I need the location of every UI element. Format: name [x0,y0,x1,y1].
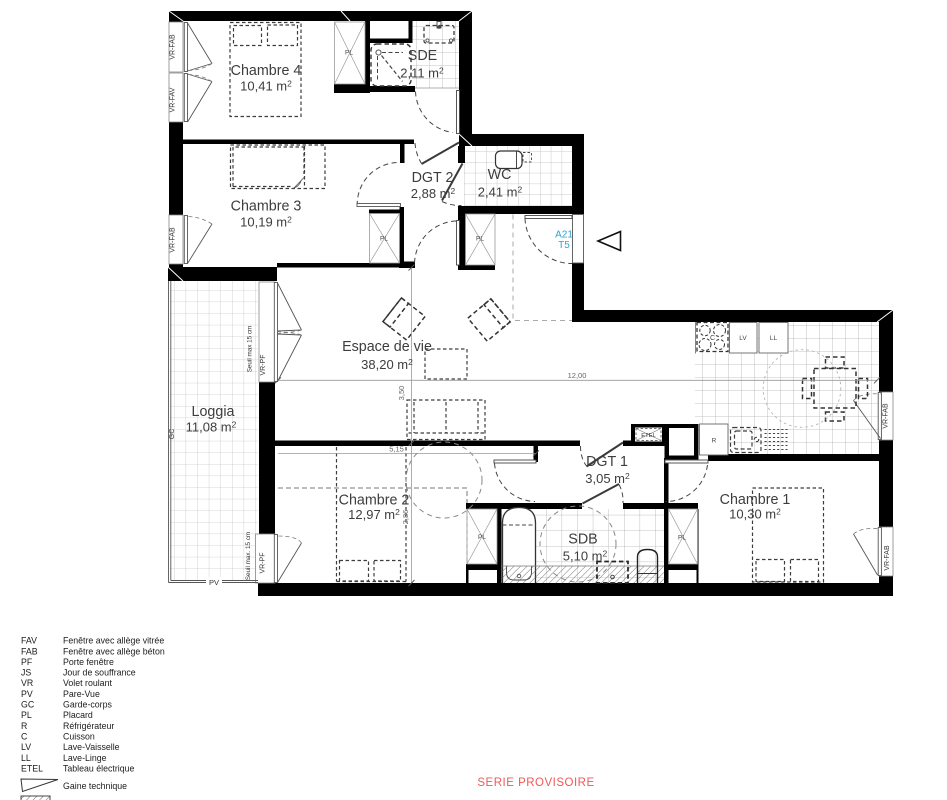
svg-text:WC: WC [488,167,512,183]
svg-text:3,05 m2: 3,05 m2 [585,471,630,486]
svg-text:VR-FAB: VR-FAB [884,545,891,571]
svg-text:PL: PL [476,236,484,243]
svg-text:Chambre 4: Chambre 4 [231,63,302,79]
svg-text:VR-FAB: VR-FAB [170,227,177,253]
svg-text:3,50: 3,50 [397,386,406,401]
svg-text:PL: PL [478,534,486,541]
svg-text:Chambre 3: Chambre 3 [231,199,302,215]
svg-text:38,20 m2: 38,20 m2 [361,357,413,372]
svg-text:2,88 m2: 2,88 m2 [411,186,456,201]
svg-text:PL: PL [345,50,353,57]
svg-text:Lave-Linge: Lave-Linge [63,753,107,763]
svg-text:R: R [21,721,27,731]
svg-text:VR-PF: VR-PF [260,553,267,574]
svg-text:PV: PV [209,578,219,587]
svg-text:Volet roulant: Volet roulant [63,678,112,688]
svg-text:LV: LV [739,335,747,342]
svg-text:2,41 m2: 2,41 m2 [478,185,523,200]
svg-text:ETEL: ETEL [21,763,43,773]
svg-text:SDE: SDE [408,48,437,64]
svg-text:VR-FAB: VR-FAB [170,34,177,60]
svg-text:2,11 m2: 2,11 m2 [400,66,444,81]
svg-text:5,15: 5,15 [389,444,404,453]
svg-text:10,41 m2: 10,41 m2 [240,79,292,94]
svg-text:GC: GC [169,429,176,440]
svg-text:LL: LL [21,753,31,763]
svg-text:Cuisson: Cuisson [63,732,95,742]
svg-text:SERIE PROVISOIRE: SERIE PROVISOIRE [477,777,594,789]
svg-text:VR: VR [21,678,33,688]
svg-text:PL: PL [380,236,388,243]
svg-text:JS: JS [21,668,31,678]
svg-text:GC: GC [21,700,35,710]
svg-text:Tableau électrique: Tableau électrique [63,763,135,773]
svg-text:Réfrigérateur: Réfrigérateur [63,721,114,731]
svg-text:Porte fenêtre: Porte fenêtre [63,657,114,667]
svg-text:VR-FAB: VR-FAB [883,403,890,429]
svg-text:C: C [710,335,715,342]
svg-text:LV: LV [21,742,31,752]
svg-text:Espace de vie: Espace de vie [342,339,432,355]
svg-text:5,10 m2: 5,10 m2 [563,549,608,564]
svg-text:11,08 m2: 11,08 m2 [186,420,237,435]
svg-text:R: R [712,438,717,445]
svg-text:10,19 m2: 10,19 m2 [240,215,292,230]
svg-text:SDB: SDB [568,532,597,548]
svg-text:A21: A21 [555,230,573,241]
svg-text:DGT 2: DGT 2 [412,170,454,186]
svg-text:LL: LL [770,335,778,342]
svg-text:VR-PF: VR-PF [260,355,267,376]
svg-text:DGT 1: DGT 1 [586,454,628,470]
svg-text:FAV: FAV [21,636,37,646]
svg-text:Fenêtre avec allège béton: Fenêtre avec allège béton [63,646,165,656]
svg-text:Seuil max. 15 cm: Seuil max. 15 cm [245,532,252,580]
svg-text:Seuil max 15 cm: Seuil max 15 cm [247,326,254,373]
svg-text:VR-FAV: VR-FAV [170,87,177,112]
svg-text:Placard: Placard [63,710,93,720]
svg-text:Gaine technique: Gaine technique [63,781,127,791]
svg-text:FAB: FAB [21,646,38,656]
svg-text:Lave-Vaisselle: Lave-Vaisselle [63,742,120,752]
svg-text:ETEL: ETEL [641,433,656,439]
svg-text:PF: PF [21,657,33,667]
svg-text:PV: PV [21,689,33,699]
svg-text:Jour de souffrance: Jour de souffrance [63,668,136,678]
svg-text:Loggia: Loggia [192,404,235,420]
svg-text:Pare-Vue: Pare-Vue [63,689,100,699]
svg-text:12,97 m2: 12,97 m2 [348,507,400,522]
svg-text:2,86: 2,86 [401,510,410,525]
svg-text:T5: T5 [558,240,570,251]
svg-text:C: C [21,732,28,742]
svg-text:Fenêtre avec allège vitrée: Fenêtre avec allège vitrée [63,636,164,646]
svg-text:Garde-corps: Garde-corps [63,700,112,710]
svg-text:12,00: 12,00 [568,371,587,380]
svg-text:10,30 m2: 10,30 m2 [729,507,781,522]
svg-text:PL: PL [678,535,686,542]
svg-text:PL: PL [21,710,32,720]
